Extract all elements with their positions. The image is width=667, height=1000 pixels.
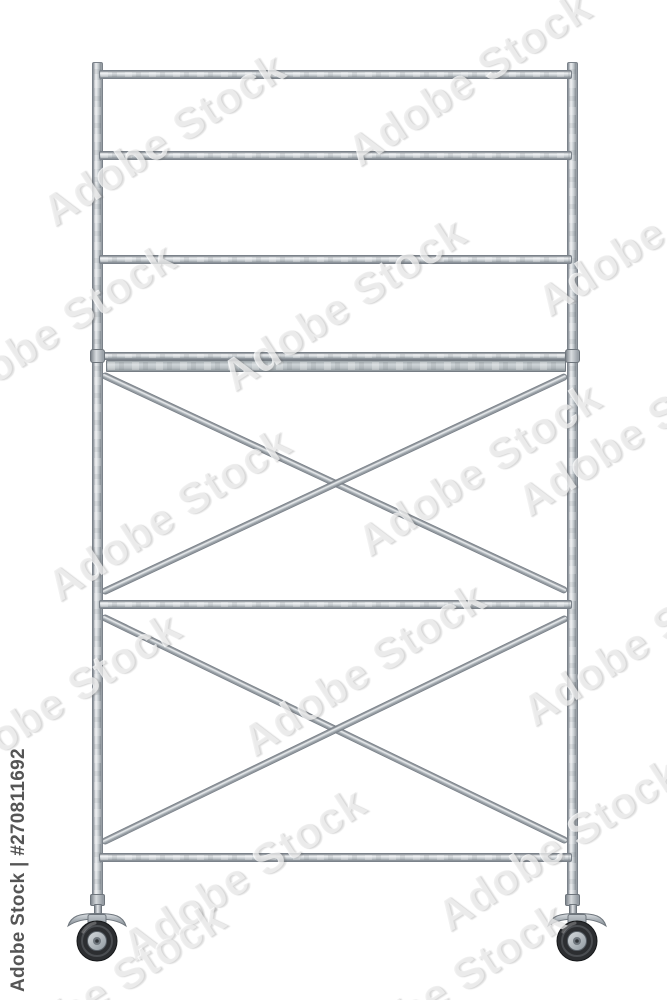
guardrail-top	[99, 70, 572, 79]
platform-deck	[106, 360, 566, 372]
scaffold-post-left	[92, 62, 103, 900]
guardrail-lower	[99, 255, 572, 264]
stock-image-canvas: Adobe Stock Adobe Stock Adobe Stock Adob…	[0, 0, 667, 1000]
base-horizontal-rail	[99, 853, 572, 862]
guardrail-middle	[99, 151, 572, 160]
swivel-caster-left-icon	[65, 912, 129, 964]
scaffold-tower-illustration	[0, 0, 667, 1000]
mid-horizontal-rail	[99, 600, 572, 609]
frame-coupler-right	[565, 349, 580, 363]
platform-support-rail	[99, 352, 572, 360]
swivel-caster-right-icon	[545, 912, 609, 964]
frame-coupler-left	[90, 349, 105, 363]
scaffold-post-right	[567, 62, 578, 900]
watermark-attribution: Adobe Stock | #270811692	[8, 762, 30, 992]
